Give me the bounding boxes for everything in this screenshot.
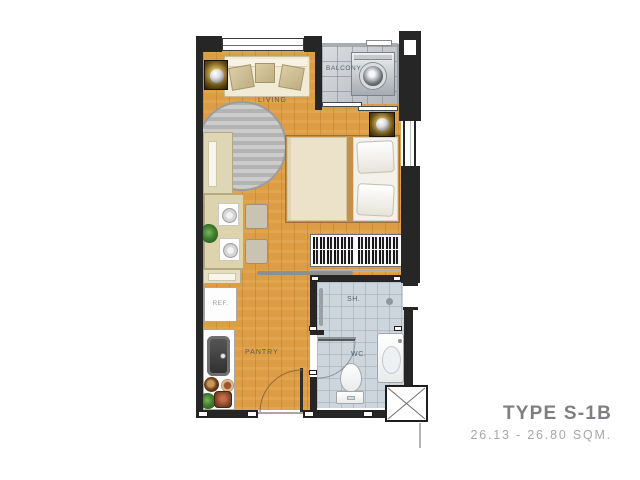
dining-chair: [245, 239, 268, 264]
counter-inset: [208, 141, 217, 187]
title-block: TYPE S-1B 26.13 - 26.80 SQM.: [471, 403, 613, 442]
decor-bowl: [204, 377, 219, 392]
washer-door-icon: [360, 63, 386, 89]
living-window: [222, 38, 304, 51]
unit-type-title: TYPE S-1B: [471, 403, 613, 425]
wall-bath-right: [404, 310, 413, 387]
side-table-lamp: [204, 60, 228, 90]
column-marker: [309, 326, 317, 331]
balcony-label: BALCONY: [326, 66, 361, 73]
right-wall-opening: [403, 283, 418, 310]
refrigerator: REF.: [204, 287, 237, 322]
lamp-sphere-icon: [376, 118, 389, 131]
plate-icon: [223, 243, 238, 258]
wardrobe-clothes: [313, 237, 355, 264]
sofa-pillow: [278, 64, 305, 91]
column-marker: [247, 411, 257, 417]
bed-blanket: [287, 137, 347, 221]
entrance-threshold: [258, 412, 303, 414]
wall-bath-left-upper: [310, 282, 317, 330]
washbasin-bowl: [382, 346, 401, 374]
shower-rail: [319, 288, 323, 326]
bedroom-window: [403, 121, 416, 166]
unit-area-subtitle: 26.13 - 26.80 SQM.: [471, 428, 613, 442]
bed-pillow: [356, 183, 395, 217]
column-shaft-opening: [404, 40, 416, 55]
floor-plan-canvas: REF.: [0, 0, 640, 480]
plate-icon: [222, 208, 237, 223]
column-marker: [393, 276, 401, 281]
placemat: [218, 203, 239, 226]
refrigerator-label: REF.: [205, 301, 236, 308]
wc-label: WC.: [351, 351, 366, 358]
wardrobe-clothes: [358, 237, 400, 264]
dining-chair: [245, 204, 268, 229]
washing-machine: [351, 52, 395, 96]
faucet-icon: [398, 339, 402, 343]
washbasin-counter: [377, 333, 404, 383]
balcony-railing-detail: [366, 40, 392, 46]
decor-dish: [214, 391, 232, 408]
entrance-door-leaf: [300, 368, 303, 412]
wall-left: [196, 36, 203, 418]
column-marker: [363, 411, 373, 417]
sofa-pillow: [228, 64, 255, 91]
balcony-sliding-door: [322, 102, 362, 107]
shower-label: SH.: [347, 296, 360, 303]
bed-pillow: [356, 140, 395, 174]
toilet-tank: [336, 391, 364, 404]
pantry-label: PANTRY: [245, 349, 279, 356]
balcony-sliding-door: [358, 106, 398, 111]
faucet-icon: [220, 353, 226, 359]
kitchen-counter-upper: [203, 132, 233, 194]
wall-bath-left-lower: [310, 377, 317, 410]
ac-ledge-hatch: [385, 385, 428, 422]
wall-bath-top: [310, 275, 404, 282]
placemat: [219, 238, 240, 261]
flush-button-icon: [347, 396, 355, 400]
wardrobe-rail: [313, 249, 399, 250]
column-marker: [198, 411, 208, 417]
living-label: LIVING: [258, 97, 287, 104]
column-marker: [311, 276, 319, 281]
counter-inset: [208, 273, 236, 281]
column-marker: [309, 370, 317, 375]
plant: [201, 224, 218, 243]
kitchen-sink: [207, 336, 230, 376]
wall-right: [401, 166, 420, 283]
shower-head-icon: [386, 298, 393, 305]
lamp-sphere-icon: [210, 69, 224, 83]
column-marker: [304, 411, 314, 417]
nightstand-lamp: [369, 112, 395, 137]
washer-control-panel: [354, 55, 392, 60]
bathroom-door-leaf: [318, 339, 355, 341]
wardrobe: [310, 234, 402, 267]
toilet-bowl: [340, 363, 362, 392]
kitchen-counter-lower: [203, 269, 241, 284]
sofa-pillow: [255, 63, 275, 83]
column-marker: [394, 326, 402, 331]
wall-top-corner: [196, 36, 222, 52]
wall-balcony-divider: [315, 38, 322, 110]
